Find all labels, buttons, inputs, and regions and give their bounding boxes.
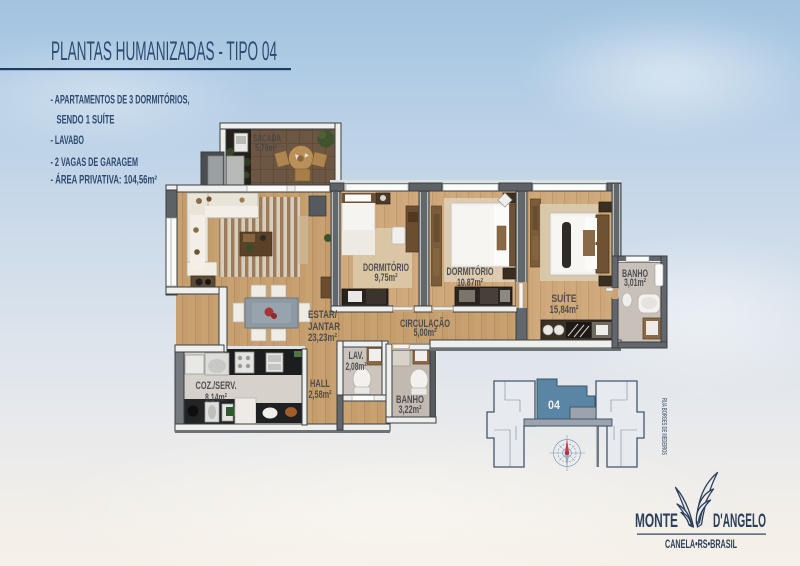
svg-text:- LAVABO: - LAVABO bbox=[51, 135, 85, 147]
svg-text:10,87m²: 10,87m² bbox=[457, 277, 483, 289]
svg-text:5,79m²: 5,79m² bbox=[255, 143, 277, 154]
svg-text:MONTE: MONTE bbox=[635, 511, 678, 532]
svg-text:COZ./SERV.: COZ./SERV. bbox=[196, 380, 237, 392]
svg-text:2,08m²: 2,08m² bbox=[346, 361, 367, 373]
svg-text:15,84m²: 15,84m² bbox=[550, 304, 579, 316]
svg-text:SENDO 1 SUÍTE: SENDO 1 SUÍTE bbox=[57, 114, 115, 127]
svg-text:CANELA•RS•BRASIL: CANELA•RS•BRASIL bbox=[665, 539, 737, 551]
svg-text:3,22m²: 3,22m² bbox=[399, 404, 422, 416]
svg-text:8,14m²: 8,14m² bbox=[205, 392, 227, 404]
svg-text:2,58m²: 2,58m² bbox=[309, 389, 332, 401]
svg-text:PLANTAS HUMANIZADAS - TIPO 04: PLANTAS HUMANIZADAS - TIPO 04 bbox=[51, 36, 277, 66]
svg-text:RUA BORGES DE MEDEIROS: RUA BORGES DE MEDEIROS bbox=[660, 398, 667, 455]
svg-text:5,00m²: 5,00m² bbox=[414, 327, 437, 339]
svg-text:04: 04 bbox=[548, 398, 560, 412]
svg-text:23,23m²: 23,23m² bbox=[308, 332, 337, 344]
svg-text:- 2 VAGAS DE GARAGEM: - 2 VAGAS DE GARAGEM bbox=[51, 157, 139, 169]
svg-text:3,01m²: 3,01m² bbox=[624, 277, 646, 289]
svg-text:9,75m²: 9,75m² bbox=[375, 272, 398, 284]
svg-text:ESTAR/: ESTAR/ bbox=[308, 309, 337, 321]
svg-text:- ÁREA PRIVATIVA: 104,56m²: - ÁREA PRIVATIVA: 104,56m² bbox=[51, 174, 158, 187]
svg-text:- APARTAMENTOS DE 3 DORMITÓRIO: - APARTAMENTOS DE 3 DORMITÓRIOS, bbox=[51, 94, 190, 107]
svg-text:D'ANGELO: D'ANGELO bbox=[713, 511, 766, 532]
